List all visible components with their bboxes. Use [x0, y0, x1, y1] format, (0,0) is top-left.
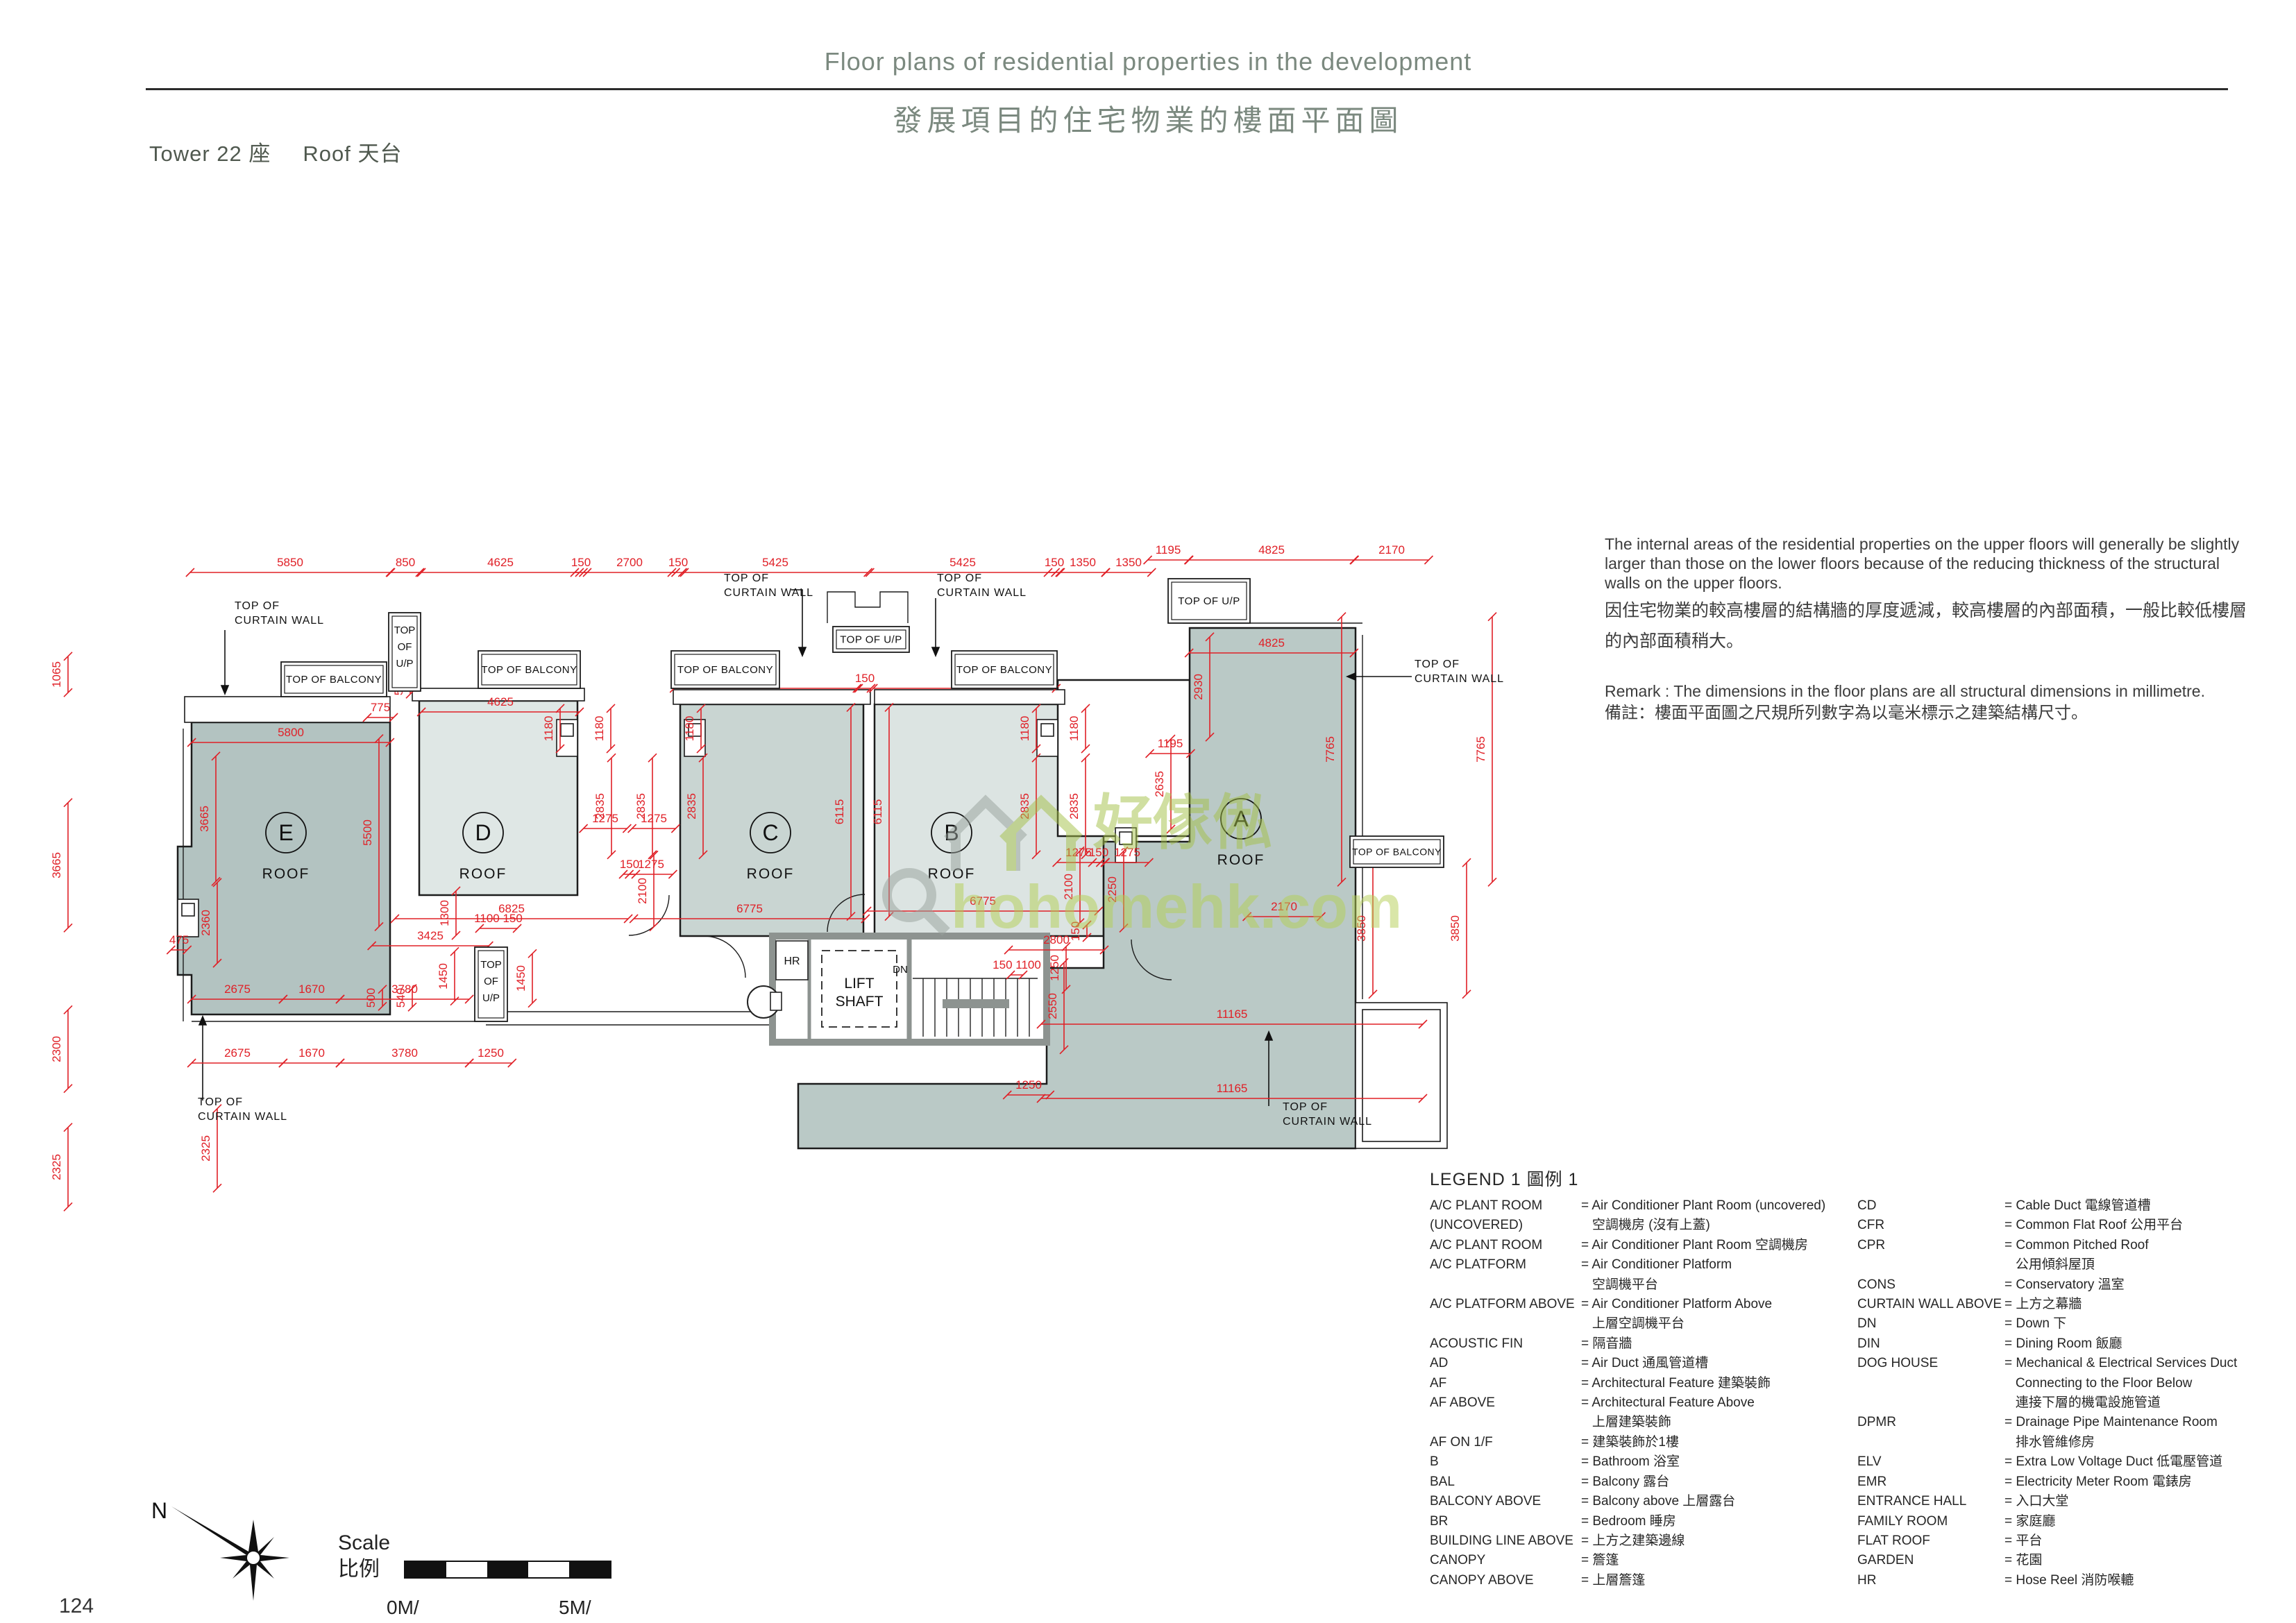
svg-text:4625: 4625 — [487, 695, 514, 708]
floor-plan-svg: 5850850462515027001505425542515013501350… — [42, 520, 1534, 1214]
legend-row: AF= Architectural Feature 建築裝飾 Connectin… — [1430, 1374, 2290, 1393]
svg-text:2325: 2325 — [199, 1135, 212, 1162]
top-of-curtain-wall-label: TOP OFCURTAIN WALL — [1415, 658, 1504, 685]
svg-text:150: 150 — [571, 556, 591, 569]
legend-cell: HR — [1857, 1571, 2004, 1590]
legend-cell: Connecting to the Floor Below — [2004, 1374, 2290, 1393]
svg-text:2835: 2835 — [1067, 793, 1081, 819]
svg-text:1065: 1065 — [50, 661, 63, 688]
dimension: 150 — [571, 556, 591, 577]
svg-text:6115: 6115 — [833, 799, 846, 825]
svg-text:1350: 1350 — [1070, 556, 1096, 569]
dimension: 2170 — [1351, 543, 1433, 564]
page-title-zh: 發展項目的住宅物業的樓面平面圖 — [0, 97, 2296, 139]
svg-text:150: 150 — [1069, 921, 1082, 941]
svg-text:2675: 2675 — [224, 1046, 251, 1060]
legend-cell: CPR — [1857, 1236, 2004, 1255]
svg-text:SHAFT: SHAFT — [836, 994, 884, 1010]
top-of-curtain-wall-label: TOP OFCURTAIN WALL — [235, 600, 324, 627]
svg-text:1250: 1250 — [1048, 955, 1061, 981]
svg-text:4825: 4825 — [1258, 636, 1285, 649]
floor-plan: 5850850462515027001505425542515013501350… — [42, 520, 1534, 1214]
legend-row: CANOPY= 簷篷GARDEN= 花園 — [1430, 1551, 2290, 1570]
svg-text:3425: 3425 — [417, 929, 444, 942]
legend-cell: = 隔音牆 — [1581, 1334, 1857, 1354]
legend-cell: A/C PLATFORM — [1430, 1255, 1581, 1275]
svg-text:3665: 3665 — [198, 806, 211, 832]
svg-text:TOP OF: TOP OF — [1283, 1101, 1328, 1113]
dimension: 1065 — [50, 652, 72, 697]
brochure-page: Floor plans of residential properties in… — [0, 0, 2296, 1623]
walkway — [486, 1012, 773, 1025]
svg-text:150: 150 — [855, 672, 875, 685]
legend-cell: 上層空調機平台 — [1581, 1314, 1857, 1334]
svg-text:4825: 4825 — [1258, 543, 1285, 556]
legend-cell: = 上層簷篷 — [1581, 1571, 1857, 1590]
dimension: 4625 — [417, 556, 584, 577]
legend-cell: = Architectural Feature 建築裝飾 — [1581, 1374, 1857, 1393]
svg-text:2835: 2835 — [685, 793, 698, 819]
legend-cell: A/C PLANT ROOM — [1430, 1236, 1581, 1255]
dimension: 1180 — [593, 704, 615, 753]
legend-cell: DIN — [1857, 1334, 2004, 1354]
core — [748, 936, 1047, 1042]
page-title-en: Floor plans of residential properties in… — [0, 47, 2296, 76]
svg-text:TOP OF: TOP OF — [937, 572, 982, 584]
legend-cell: = Bathroom 浴室 — [1581, 1452, 1857, 1472]
svg-text:150: 150 — [668, 556, 688, 569]
legend-row: 空調機平台CONS= Conservatory 溫室 — [1430, 1275, 2290, 1295]
svg-text:5800: 5800 — [278, 726, 304, 739]
legend-cell: = Mechanical & Electrical Services Duct — [2004, 1354, 2290, 1373]
legend-cell: A/C PLATFORM ABOVE — [1430, 1295, 1581, 1314]
hr-label: HR — [784, 955, 800, 967]
legend-cell: GARDEN — [1857, 1551, 2004, 1570]
legend-row: AD= Air Duct 通風管道槽DOG HOUSE= Mechanical … — [1430, 1354, 2290, 1373]
legend-cell: = Balcony above 上層露台 — [1581, 1492, 1857, 1511]
legend-cell — [1430, 1413, 1581, 1432]
legend-cell — [1857, 1393, 2004, 1413]
top-of-up-box: TOPOFU/P — [475, 947, 507, 1021]
legend-row: A/C PLATFORM ABOVE= Air Conditioner Plat… — [1430, 1295, 2290, 1314]
svg-text:475: 475 — [169, 933, 189, 946]
legend-cell: 空調機房 (沒有上蓋) — [1581, 1216, 1857, 1235]
legend-cell: = Conservatory 溫室 — [2004, 1275, 2290, 1295]
svg-text:CURTAIN WALL: CURTAIN WALL — [235, 615, 324, 627]
legend-cell: CURTAIN WALL ABOVE — [1857, 1295, 2004, 1314]
legend-row: BAL= Balcony 露台EMR= Electricity Meter Ro… — [1430, 1472, 2290, 1492]
svg-text:1195: 1195 — [1156, 543, 1181, 556]
legend-row: A/C PLATFORM= Air Conditioner Platform 公… — [1430, 1255, 2290, 1275]
up-castellation — [827, 592, 908, 623]
legend-cell — [1430, 1314, 1581, 1334]
legend-table: A/C PLANT ROOM= Air Conditioner Plant Ro… — [1430, 1196, 2290, 1590]
legend-cell: 公用傾斜屋頂 — [2004, 1255, 2290, 1275]
legend-cell: = Air Conditioner Plant Room 空調機房 — [1581, 1236, 1857, 1255]
svg-text:1450: 1450 — [437, 963, 450, 989]
top-of-up-box: TOP OF U/P — [1168, 579, 1250, 623]
legend-cell: BAL — [1430, 1472, 1581, 1492]
legend-cell: = 建築裝飾於1樓 — [1581, 1433, 1857, 1452]
svg-text:3850: 3850 — [1355, 915, 1368, 942]
svg-text:2930: 2930 — [1192, 674, 1205, 700]
scale-zero-label: 0M/米 — [387, 1597, 419, 1623]
remark-zh: 備註：樓面平面圖之尺規所列數字為以毫米標示之建築結構尺寸。 — [1605, 701, 2271, 726]
dimension: 2700 — [579, 556, 679, 577]
legend-cell: = Extra Low Voltage Duct 低電壓管道 — [2004, 1452, 2290, 1472]
svg-text:1450: 1450 — [514, 965, 527, 992]
dimension: 2325 — [50, 1123, 72, 1212]
svg-text:2360: 2360 — [199, 910, 212, 936]
legend-cell: = 平台 — [2004, 1531, 2290, 1551]
svg-text:ROOF: ROOF — [262, 866, 310, 882]
legend-cell: 排水管維修房 — [2004, 1433, 2290, 1452]
legend-row: AF ABOVE= Architectural Feature Above 連接… — [1430, 1393, 2290, 1413]
legend-cell: AF ABOVE — [1430, 1393, 1581, 1413]
dimension: 850 — [387, 556, 424, 577]
legend-row: BALCONY ABOVE= Balcony above 上層露台ENTRANC… — [1430, 1492, 2290, 1511]
svg-text:150: 150 — [620, 858, 639, 871]
svg-text:7765: 7765 — [1474, 736, 1487, 763]
svg-text:1180: 1180 — [1067, 716, 1081, 742]
svg-text:500: 500 — [364, 988, 378, 1008]
svg-text:11165: 11165 — [1217, 1008, 1248, 1021]
legend-cell: ENTRANCE HALL — [1857, 1492, 2004, 1511]
legend-cell: = Electricity Meter Room 電錶房 — [2004, 1472, 2290, 1492]
legend-cell: FAMILY ROOM — [1857, 1512, 2004, 1531]
dimension: 150 — [619, 858, 640, 878]
legend-cell — [1857, 1433, 2004, 1452]
svg-text:5425: 5425 — [949, 556, 976, 569]
legend-cell: = Drainage Pipe Maintenance Room — [2004, 1413, 2290, 1432]
legend-row: A/C PLANT ROOM= Air Conditioner Plant Ro… — [1430, 1196, 2290, 1216]
legend-cell: = Common Pitched Roof — [2004, 1236, 2290, 1255]
stair-rail — [943, 999, 1009, 1008]
top-of-balcony-box: TOP OF BALCONY — [478, 651, 580, 688]
legend-cell: = Balcony 露台 — [1581, 1472, 1857, 1492]
legend-cell: = Bedroom 睡房 — [1581, 1512, 1857, 1531]
legend-row: B= Bathroom 浴室ELV= Extra Low Voltage Duc… — [1430, 1452, 2290, 1472]
svg-text:6825: 6825 — [498, 902, 525, 915]
svg-text:150: 150 — [1045, 556, 1064, 569]
svg-text:1180: 1180 — [1018, 716, 1031, 742]
north-label: N — [151, 1498, 167, 1523]
legend-cell: ELV — [1857, 1452, 2004, 1472]
svg-text:5425: 5425 — [762, 556, 788, 569]
svg-text:CURTAIN WALL: CURTAIN WALL — [1415, 673, 1504, 685]
svg-text:3665: 3665 — [50, 852, 63, 878]
legend-cell: = Down 下 — [2004, 1314, 2290, 1334]
svg-text:2700: 2700 — [616, 556, 643, 569]
svg-text:1250: 1250 — [478, 1046, 504, 1060]
svg-text:ROOF: ROOF — [459, 866, 507, 882]
legend-cell: = Architectural Feature Above — [1581, 1393, 1857, 1413]
legend-cell: = Hose Reel 消防喉轆 — [2004, 1571, 2290, 1590]
legend-cell: = 花園 — [2004, 1551, 2290, 1570]
svg-text:6775: 6775 — [736, 902, 763, 915]
legend-cell: 上層建築裝飾 — [1581, 1413, 1857, 1432]
svg-text:1275: 1275 — [1065, 846, 1092, 859]
legend-cell — [1857, 1374, 2004, 1393]
svg-text:1180: 1180 — [593, 716, 606, 742]
svg-text:5500: 5500 — [361, 819, 374, 846]
tower-label: Tower 22 座 — [149, 142, 271, 166]
floor-label: Roof 天台 — [303, 142, 402, 166]
svg-text:6775: 6775 — [970, 894, 996, 908]
dimension: 2300 — [50, 1005, 72, 1092]
svg-text:7765: 7765 — [1324, 736, 1337, 763]
svg-text:CURTAIN WALL: CURTAIN WALL — [198, 1111, 287, 1123]
svg-text:B: B — [944, 820, 959, 845]
legend-cell: BUILDING LINE ABOVE — [1430, 1531, 1581, 1551]
top-of-curtain-wall-label: TOP OFCURTAIN WALL — [198, 1096, 287, 1123]
top-of-curtain-wall-label: TOP OFCURTAIN WALL — [724, 572, 813, 599]
svg-text:1670: 1670 — [298, 1046, 325, 1060]
legend-cell: = Dining Room 飯廳 — [2004, 1334, 2290, 1354]
legend-cell: BR — [1430, 1512, 1581, 1531]
legend-cell: DPMR — [1857, 1413, 2004, 1432]
svg-text:1195: 1195 — [1158, 737, 1183, 750]
svg-text:E: E — [278, 820, 293, 845]
dimension: 5425 — [678, 556, 872, 577]
dimension: 1450 — [514, 949, 537, 1007]
legend-cell: = 上方之幕牆 — [2004, 1295, 2290, 1314]
legend-cell: CONS — [1857, 1275, 2004, 1295]
svg-text:2835: 2835 — [1018, 793, 1031, 819]
top-of-curtain-wall-label: TOP OFCURTAIN WALL — [937, 572, 1027, 599]
note-en: The internal areas of the residential pr… — [1605, 534, 2257, 593]
legend-cell: CFR — [1857, 1216, 2004, 1235]
svg-text:1180: 1180 — [683, 716, 696, 742]
svg-text:CURTAIN WALL: CURTAIN WALL — [724, 587, 813, 599]
legend-row: (UNCOVERED) 空調機房 (沒有上蓋)CFR= Common Flat … — [1430, 1216, 2290, 1235]
svg-text:CURTAIN WALL: CURTAIN WALL — [937, 587, 1027, 599]
top-of-balcony-box: TOP OF BALCONY — [281, 662, 387, 697]
svg-text:1180: 1180 — [542, 716, 555, 742]
scale-max-label: 5M/米 — [559, 1597, 591, 1623]
svg-text:6115: 6115 — [871, 799, 884, 825]
svg-text:D: D — [475, 820, 491, 845]
tower-floor-label: Tower 22 座Roof 天台 — [149, 136, 403, 167]
legend-cell: = Common Flat Roof 公用平台 — [2004, 1216, 2290, 1235]
svg-text:TOP OF BALCONY: TOP OF BALCONY — [956, 664, 1052, 676]
svg-text:540: 540 — [394, 988, 407, 1008]
dn-label: DN — [893, 964, 908, 976]
legend-title: LEGEND 1 圖例 1 — [1430, 1166, 2290, 1191]
svg-text:1670: 1670 — [298, 983, 325, 996]
top-of-up-box: TOP OF U/P — [833, 627, 909, 652]
legend-row: BR= Bedroom 睡房FAMILY ROOM= 家庭廳 — [1430, 1512, 2290, 1531]
svg-text:TOP OF: TOP OF — [198, 1096, 243, 1108]
svg-text:CURTAIN WALL: CURTAIN WALL — [1283, 1116, 1372, 1128]
svg-text:775: 775 — [371, 701, 390, 714]
scale-bar-graphic — [404, 1561, 611, 1579]
door-arc — [704, 936, 745, 978]
legend-cell: AF — [1430, 1374, 1581, 1393]
door-arc — [629, 895, 669, 935]
legend-cell: = 上方之建築邊線 — [1581, 1531, 1857, 1551]
dimension: 4825 — [1185, 543, 1358, 564]
svg-text:1275: 1275 — [592, 812, 618, 825]
legend-cell: = Air Conditioner Plant Room (uncovered) — [1581, 1196, 1857, 1216]
legend-cell: BALCONY ABOVE — [1430, 1492, 1581, 1511]
svg-text:2675: 2675 — [224, 983, 251, 996]
svg-text:2550: 2550 — [1046, 993, 1059, 1019]
lift-shaft-label: LIFT — [844, 976, 874, 992]
dimension: 3665 — [50, 799, 72, 933]
top-of-balcony-box: TOP OF BALCONY — [1350, 836, 1444, 867]
legend-cell: DN — [1857, 1314, 2004, 1334]
svg-text:ROOF: ROOF — [1217, 852, 1265, 868]
general-note: The internal areas of the residential pr… — [1605, 534, 2257, 656]
svg-text:2300: 2300 — [50, 1036, 63, 1062]
svg-text:1275: 1275 — [1114, 846, 1140, 859]
page-number: 124 — [59, 1595, 94, 1618]
svg-text:2170: 2170 — [1271, 900, 1297, 913]
svg-text:TOP OF BALCONY: TOP OF BALCONY — [1352, 847, 1442, 858]
svg-text:TOP OF: TOP OF — [235, 600, 280, 612]
legend-cell: AF ON 1/F — [1430, 1433, 1581, 1452]
dimension: 2835 — [634, 754, 657, 859]
top-of-up-box: TOPOFU/P — [389, 613, 421, 691]
svg-text:1275: 1275 — [638, 858, 664, 871]
dimension: 1195 — [1144, 543, 1193, 564]
svg-text:TOP OF: TOP OF — [1415, 658, 1460, 670]
svg-text:1350: 1350 — [1115, 556, 1142, 569]
svg-text:C: C — [762, 820, 778, 845]
legend-cell: DOG HOUSE — [1857, 1354, 2004, 1373]
dimension: 1670 — [279, 1046, 344, 1067]
legend-block: LEGEND 1 圖例 1 A/C PLANT ROOM= Air Condit… — [1430, 1166, 2290, 1590]
svg-text:2250: 2250 — [1106, 876, 1119, 903]
svg-text:2325: 2325 — [50, 1154, 63, 1180]
svg-text:TOP OF BALCONY: TOP OF BALCONY — [286, 674, 382, 686]
legend-cell: AD — [1430, 1354, 1581, 1373]
top-of-balcony-box: TOP OF BALCONY — [952, 651, 1057, 688]
dimension: 1275 — [580, 812, 632, 833]
svg-text:ROOF: ROOF — [928, 866, 976, 882]
header-rule — [146, 88, 2228, 90]
legend-cell: B — [1430, 1452, 1581, 1472]
legend-cell: CANOPY ABOVE — [1430, 1571, 1581, 1590]
dimension: 3780 — [336, 1046, 473, 1067]
legend-cell: FLAT ROOF — [1857, 1531, 2004, 1551]
dimension: 150 — [668, 556, 689, 577]
dimension: 7765 — [1474, 613, 1496, 887]
legend-row: ACOUSTIC FIN= 隔音牆DIN= Dining Room 飯廳 — [1430, 1334, 2290, 1354]
svg-text:1300: 1300 — [438, 900, 451, 926]
legend-row: AF ON 1/F= 建築裝飾於1樓 排水管維修房 — [1430, 1433, 2290, 1452]
note-zh: 因住宅物業的較高樓層的結構牆的厚度遞減，較高樓層的內部面積，一般比較低樓層的內部… — [1605, 595, 2257, 656]
legend-cell: 連接下層的機電設施管道 — [2004, 1393, 2290, 1413]
svg-text:TOP OF BALCONY: TOP OF BALCONY — [481, 664, 577, 676]
svg-text:1275: 1275 — [641, 812, 667, 825]
dimension: 3850 — [1449, 858, 1471, 999]
remark-note: Remark : The dimensions in the floor pla… — [1605, 681, 2271, 726]
legend-cell: CD — [1857, 1196, 2004, 1216]
svg-text:5850: 5850 — [277, 556, 303, 569]
remark-en: Remark : The dimensions in the floor pla… — [1605, 681, 2271, 701]
svg-text:A: A — [1233, 806, 1249, 831]
svg-text:2170: 2170 — [1378, 543, 1405, 556]
north-arrow-icon — [171, 1506, 289, 1601]
legend-cell — [1430, 1275, 1581, 1295]
svg-text:TOP OF BALCONY: TOP OF BALCONY — [677, 664, 773, 676]
svg-text:TOP OF U/P: TOP OF U/P — [840, 634, 902, 646]
legend-row: 上層建築裝飾DPMR= Drainage Pipe Maintenance Ro… — [1430, 1413, 2290, 1432]
svg-text:4625: 4625 — [487, 556, 514, 569]
legend-cell: = Cable Duct 電線管道槽 — [2004, 1196, 2290, 1216]
legend-cell: = Air Conditioner Platform Above — [1581, 1295, 1857, 1314]
dimension: 1450 — [437, 947, 459, 1005]
svg-text:TOP OF U/P: TOP OF U/P — [1178, 595, 1240, 607]
legend-cell: = 家庭廳 — [2004, 1512, 2290, 1531]
svg-text:2800: 2800 — [1043, 933, 1070, 946]
top-of-balcony-box: TOP OF BALCONY — [671, 651, 779, 688]
dimension: 2835 — [593, 754, 616, 859]
legend-cell: (UNCOVERED) — [1430, 1216, 1581, 1235]
svg-text:850: 850 — [396, 556, 415, 569]
dimension: 1350 — [1101, 556, 1156, 577]
svg-text:TOP OF: TOP OF — [724, 572, 769, 584]
legend-row: CANOPY ABOVE= 上層簷篷HR= Hose Reel 消防喉轆 — [1430, 1571, 2290, 1590]
svg-text:ROOF: ROOF — [747, 866, 795, 882]
legend-cell — [1857, 1255, 2004, 1275]
svg-text:2100: 2100 — [1062, 874, 1075, 900]
svg-text:1250: 1250 — [1015, 1078, 1042, 1091]
legend-row: 上層空調機平台DN= Down 下 — [1430, 1314, 2290, 1334]
legend-cell: = 入口大堂 — [2004, 1492, 2290, 1511]
svg-text:2635: 2635 — [1153, 771, 1166, 797]
dimension: 1250 — [465, 1046, 516, 1067]
dimension: 5850 — [186, 556, 394, 577]
legend-cell: ACOUSTIC FIN — [1430, 1334, 1581, 1354]
svg-text:3850: 3850 — [1449, 915, 1462, 942]
legend-cell: 空調機平台 — [1581, 1275, 1857, 1295]
legend-cell: CANOPY — [1430, 1551, 1581, 1570]
legend-row: BUILDING LINE ABOVE= 上方之建築邊線FLAT ROOF= 平… — [1430, 1531, 2290, 1551]
legend-cell: = Air Duct 通風管道槽 — [1581, 1354, 1857, 1373]
svg-text:150 1100: 150 1100 — [993, 958, 1041, 971]
legend-cell: = Air Conditioner Platform — [1581, 1255, 1857, 1275]
legend-cell: = 簷篷 — [1581, 1551, 1857, 1570]
svg-text:11165: 11165 — [1217, 1082, 1248, 1095]
dimension: 3850 — [1355, 858, 1377, 999]
legend-cell: EMR — [1857, 1472, 2004, 1492]
dimension: 540 — [394, 985, 416, 1012]
compass: N — [139, 1485, 368, 1623]
legend-row: A/C PLANT ROOM= Air Conditioner Plant Ro… — [1430, 1236, 2290, 1255]
svg-text:2100: 2100 — [636, 878, 649, 904]
svg-text:3780: 3780 — [391, 1046, 418, 1060]
svg-text:150: 150 — [1089, 846, 1108, 859]
